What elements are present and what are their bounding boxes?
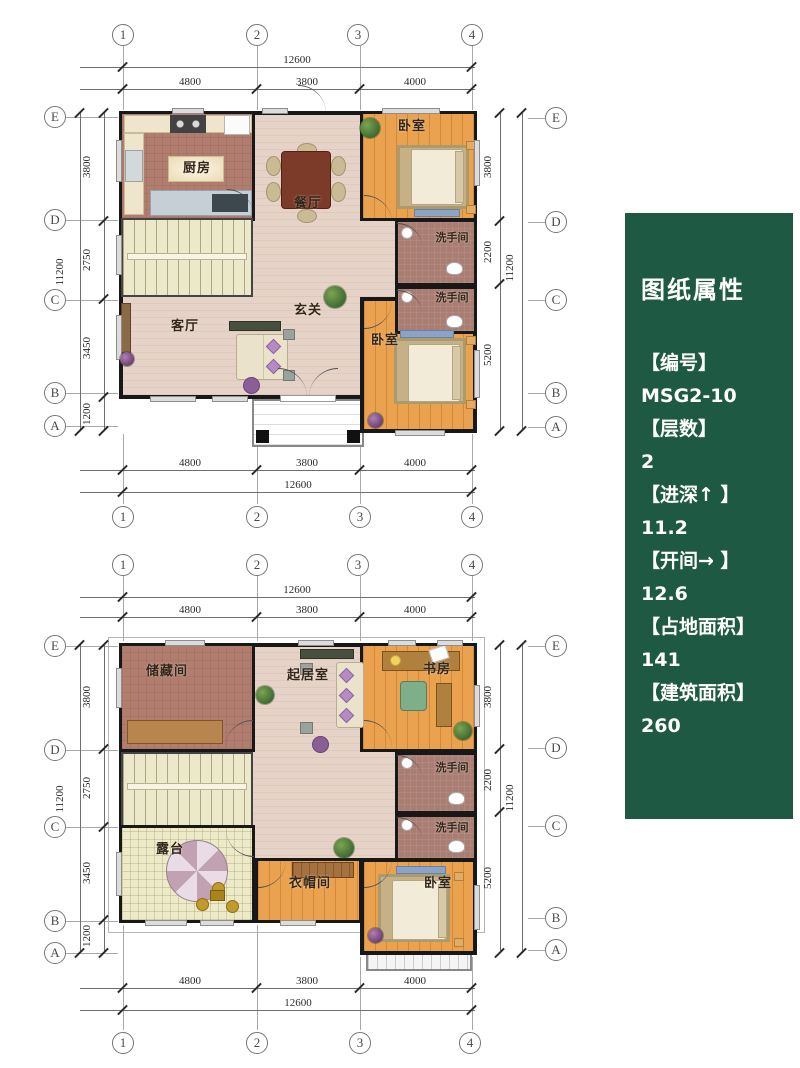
- room-label-study: 书房: [417, 663, 457, 677]
- axis-circle: 1: [112, 506, 134, 528]
- axis-line: [257, 46, 258, 110]
- axis-circle: D: [44, 739, 66, 761]
- axis-line: [528, 393, 545, 394]
- dim-label: 11200: [504, 776, 516, 820]
- dim-label: 4800: [165, 604, 215, 616]
- axis-circle: B: [44, 382, 66, 404]
- axis-line: [472, 46, 473, 110]
- window: [280, 920, 316, 926]
- dim-line: [80, 1010, 475, 1011]
- axis-line: [123, 46, 124, 110]
- axis-line: [66, 750, 118, 751]
- window: [298, 640, 334, 646]
- property-value: 141: [641, 644, 793, 677]
- axis-circle: E: [44, 106, 66, 128]
- dim-line: [500, 645, 501, 953]
- dim-label: 5200: [482, 333, 494, 377]
- property-label: 【层数】: [641, 413, 793, 446]
- axis-circle: 2: [246, 506, 268, 528]
- balcony: [366, 953, 472, 971]
- window: [116, 140, 122, 182]
- nightstand: [454, 938, 464, 947]
- axis-circle: 1: [112, 24, 134, 46]
- dim-label: 11200: [54, 777, 66, 821]
- window-bench: [414, 209, 460, 217]
- stove: [170, 115, 206, 133]
- patio-table: [210, 890, 225, 901]
- window: [145, 920, 187, 926]
- chair: [297, 209, 317, 223]
- toilet: [446, 262, 463, 275]
- panel-items: 【编号】 MSG2-10 【层数】 2 【进深↑ 】 11.2 【开间→ 】 1…: [625, 305, 793, 743]
- dim-label: 12600: [268, 479, 328, 491]
- room-label-bedroom: 卧室: [365, 334, 405, 348]
- property-value: 2: [641, 446, 793, 479]
- axis-circle: 1: [112, 554, 134, 576]
- axis-line: [360, 576, 361, 641]
- porch-column: [256, 430, 269, 443]
- dim-label: 5200: [482, 856, 494, 900]
- axis-line: [66, 646, 118, 647]
- room-label-bath: 洗手间: [425, 761, 479, 775]
- window: [382, 108, 440, 114]
- axis-circle: A: [44, 942, 66, 964]
- dim-label: 4800: [165, 975, 215, 987]
- dim-label: 4000: [390, 76, 440, 88]
- axis-line: [123, 925, 124, 1030]
- dim-label: 11200: [54, 250, 66, 294]
- dim-line: [104, 645, 105, 953]
- dim-label: 4000: [390, 604, 440, 616]
- dim-label: 4000: [390, 457, 440, 469]
- axis-line: [360, 957, 361, 1030]
- axis-line: [528, 300, 545, 301]
- axis-circle: 3: [347, 24, 369, 46]
- cabinet: [121, 303, 131, 353]
- axis-line: [528, 950, 545, 951]
- dim-label: 11200: [504, 246, 516, 290]
- room-label-storage: 储藏间: [140, 665, 194, 679]
- property-label: 【占地面积】: [641, 611, 793, 644]
- axis-circle: E: [44, 635, 66, 657]
- axis-circle: 1: [112, 1032, 134, 1054]
- ottoman: [312, 736, 329, 753]
- window: [165, 640, 205, 646]
- plant-icon: [120, 352, 134, 366]
- window: [474, 685, 480, 727]
- axis-line: [360, 440, 361, 504]
- axis-circle: A: [545, 416, 567, 438]
- side-table: [300, 722, 313, 734]
- axis-line: [528, 748, 545, 749]
- window: [116, 852, 122, 896]
- window: [388, 640, 416, 646]
- axis-line: [528, 427, 545, 428]
- axis-line: [472, 957, 473, 1030]
- patio-chair: [196, 898, 209, 911]
- bed-pillows: [438, 884, 447, 938]
- chair: [266, 182, 281, 202]
- axis-circle: 3: [349, 1032, 371, 1054]
- property-label: 【开间→ 】: [641, 545, 793, 578]
- dim-line: [80, 89, 475, 90]
- dim-label: 4800: [165, 457, 215, 469]
- axis-line: [66, 827, 118, 828]
- axis-circle: D: [44, 209, 66, 231]
- property-value: 11.2: [641, 512, 793, 545]
- tv-console: [300, 649, 354, 659]
- axis-line: [360, 46, 361, 110]
- dim-line: [522, 113, 523, 431]
- axis-circle: E: [545, 107, 567, 129]
- dim-label: 3800: [282, 604, 332, 616]
- axis-circle: D: [545, 737, 567, 759]
- dim-label: 3450: [81, 851, 93, 895]
- property-label: 【建筑面积】: [641, 677, 793, 710]
- dim-label: 4800: [165, 76, 215, 88]
- room-label-cloakroom: 衣帽间: [283, 877, 337, 891]
- axis-circle: 4: [461, 506, 483, 528]
- axis-line: [528, 918, 545, 919]
- room-label-dining: 餐厅: [288, 197, 328, 211]
- window: [395, 430, 445, 436]
- axis-circle: B: [545, 907, 567, 929]
- room-label-hall: 玄关: [288, 304, 328, 318]
- plant-icon: [368, 928, 383, 943]
- desk-return: [436, 683, 452, 727]
- room-label-bath: 洗手间: [425, 231, 479, 245]
- axis-circle: E: [545, 635, 567, 657]
- toilet: [448, 840, 465, 853]
- dim-line: [80, 470, 475, 471]
- dim-label: 2200: [482, 758, 494, 802]
- nightstand: [466, 400, 476, 409]
- window: [172, 108, 204, 114]
- window: [262, 108, 288, 114]
- room-label-bedroom: 卧室: [418, 877, 458, 891]
- dim-line: [80, 617, 475, 618]
- storage-bench: [127, 720, 223, 744]
- dim-label: 4000: [390, 975, 440, 987]
- axis-circle: 3: [347, 554, 369, 576]
- nightstand: [466, 205, 476, 214]
- dim-label: 2750: [81, 766, 93, 810]
- dim-label: 3800: [482, 145, 494, 189]
- sink: [125, 150, 143, 182]
- axis-line: [257, 925, 258, 1030]
- axis-line: [123, 576, 124, 641]
- window: [116, 235, 122, 275]
- plant-icon: [334, 838, 354, 858]
- toilet: [446, 315, 463, 328]
- property-value: 12.6: [641, 578, 793, 611]
- dim-label: 3450: [81, 326, 93, 370]
- axis-circle: A: [545, 939, 567, 961]
- axis-line: [528, 222, 545, 223]
- property-label: 【进深↑ 】: [641, 479, 793, 512]
- dim-line: [80, 597, 475, 598]
- window-bench: [400, 330, 454, 338]
- axis-circle: 4: [461, 554, 483, 576]
- axis-line: [66, 220, 118, 221]
- ottoman: [243, 377, 260, 394]
- window: [200, 920, 234, 926]
- desk-chair: [400, 681, 427, 711]
- room-label-terrace: 露台: [150, 843, 190, 857]
- axis-line: [528, 646, 545, 647]
- axis-circle: C: [545, 815, 567, 837]
- dim-label: 12600: [268, 997, 328, 1009]
- dim-label: 12600: [267, 54, 327, 66]
- room-label-kitchen: 厨房: [177, 162, 217, 176]
- room-label-sitting: 起居室: [281, 669, 335, 683]
- stair-landing: [127, 783, 247, 790]
- axis-circle: 2: [246, 554, 268, 576]
- axis-circle: 2: [246, 24, 268, 46]
- dim-label: 3800: [81, 675, 93, 719]
- dim-label: 12600: [267, 584, 327, 596]
- floorplan-sheet: 1 2 3 4 12600 4800 3800 4000 E D C B A 1…: [0, 0, 800, 1068]
- window: [474, 885, 480, 930]
- room-label-bedroom: 卧室: [392, 120, 432, 134]
- axis-circle: 4: [461, 24, 483, 46]
- dim-label: 3800: [81, 145, 93, 189]
- dim-label: 3800: [282, 975, 332, 987]
- dim-line: [80, 492, 475, 493]
- dim-label: 1200: [81, 392, 93, 436]
- dim-line: [80, 988, 475, 989]
- dim-label: 1200: [81, 914, 93, 958]
- patio-chair: [226, 900, 239, 913]
- window: [474, 350, 480, 398]
- room-label-bath: 洗手间: [425, 291, 479, 305]
- plant-icon: [368, 413, 383, 428]
- fridge: [224, 115, 250, 135]
- axis-circle: A: [44, 415, 66, 437]
- dim-line: [522, 645, 523, 953]
- axis-line: [257, 440, 258, 504]
- window: [212, 396, 248, 402]
- axis-circle: B: [44, 910, 66, 932]
- dim-label: 3800: [482, 675, 494, 719]
- axis-line: [257, 576, 258, 641]
- dim-label: 2200: [482, 230, 494, 274]
- side-table: [283, 329, 295, 340]
- window-bench: [396, 866, 446, 874]
- axis-circle: 2: [246, 1032, 268, 1054]
- plant-icon: [360, 118, 380, 138]
- window: [474, 140, 480, 186]
- panel-title: 图纸属性: [625, 213, 793, 305]
- dim-line: [104, 113, 105, 431]
- dim-line: [80, 67, 475, 68]
- axis-circle: C: [545, 289, 567, 311]
- nightstand: [466, 336, 476, 345]
- dim-label: 2750: [81, 238, 93, 282]
- plant-icon: [454, 722, 472, 740]
- axis-circle: 4: [459, 1032, 481, 1054]
- dim-line: [500, 113, 501, 431]
- room-label-living: 客厅: [165, 320, 205, 334]
- stair-landing: [127, 253, 247, 260]
- axis-line: [66, 300, 118, 301]
- window: [150, 396, 196, 402]
- axis-circle: 3: [349, 506, 371, 528]
- tv-console: [229, 321, 281, 331]
- axis-line: [528, 118, 545, 119]
- property-panel: 图纸属性 【编号】 MSG2-10 【层数】 2 【进深↑ 】 11.2 【开间…: [625, 213, 793, 819]
- axis-circle: B: [545, 382, 567, 404]
- property-value: MSG2-10: [641, 380, 793, 413]
- property-label: 【编号】: [641, 347, 793, 380]
- dim-label: 3800: [282, 457, 332, 469]
- chair: [331, 156, 346, 176]
- window: [116, 668, 122, 708]
- axis-line: [528, 826, 545, 827]
- toilet: [448, 792, 465, 805]
- window: [437, 640, 463, 646]
- bed-pillows: [455, 151, 464, 203]
- axis-circle: D: [545, 211, 567, 233]
- desk-lamp: [390, 655, 401, 666]
- chair: [266, 156, 281, 176]
- porch-column: [347, 430, 360, 443]
- axis-line: [472, 576, 473, 641]
- property-value: 260: [641, 710, 793, 743]
- bed-pillows: [452, 346, 461, 400]
- room-label-bath: 洗手间: [425, 821, 479, 835]
- chair: [331, 182, 346, 202]
- plant-icon: [256, 686, 274, 704]
